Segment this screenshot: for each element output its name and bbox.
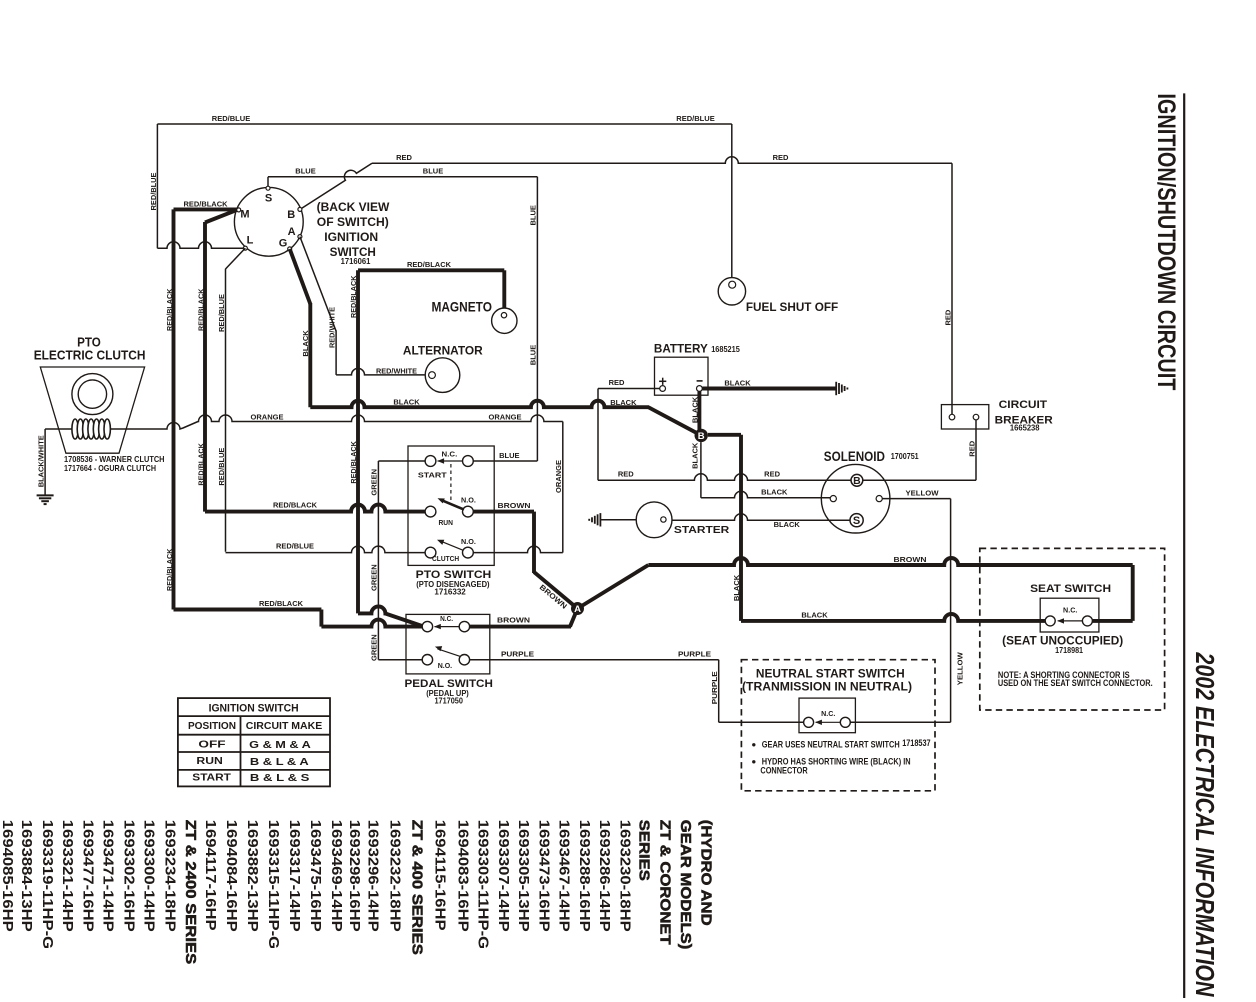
svg-text:RED/BLACK: RED/BLACK <box>349 275 358 318</box>
svg-text:BLUE: BLUE <box>423 167 443 176</box>
svg-text:1693232-18HP: 1693232-18HP <box>386 820 403 932</box>
svg-text:BLUE: BLUE <box>295 167 315 176</box>
svg-text:1693467-14HP: 1693467-14HP <box>556 820 573 932</box>
svg-text:1693884-13HP: 1693884-13HP <box>18 820 35 932</box>
svg-text:1693473-16HP: 1693473-16HP <box>535 820 552 932</box>
svg-text:1694083-16HP: 1694083-16HP <box>454 820 471 932</box>
svg-text:S: S <box>265 192 272 204</box>
svg-text:BATTERY: BATTERY <box>654 341 708 355</box>
svg-text:SOLENOID: SOLENOID <box>824 448 885 464</box>
svg-text:RED/BLACK: RED/BLACK <box>349 441 358 484</box>
svg-text:A: A <box>288 226 296 238</box>
svg-text:BLACK: BLACK <box>774 520 801 529</box>
svg-text:START: START <box>192 771 231 783</box>
svg-text:YELLOW: YELLOW <box>956 651 965 685</box>
svg-text:1693319-11HP-G: 1693319-11HP-G <box>39 820 56 949</box>
svg-text:BLUE: BLUE <box>529 205 538 225</box>
svg-text:BLACK: BLACK <box>301 330 310 357</box>
svg-text:CIRCUIT MAKE: CIRCUIT MAKE <box>246 720 323 732</box>
svg-text:RED/BLUE: RED/BLUE <box>217 294 226 332</box>
svg-text:CONNECTOR: CONNECTOR <box>760 766 808 776</box>
svg-text:IGNITION/SHUTDOWN CIRCUIT: IGNITION/SHUTDOWN CIRCUIT <box>1152 93 1180 390</box>
svg-text:BROWN: BROWN <box>498 501 531 510</box>
svg-text:BLUE: BLUE <box>529 345 538 365</box>
svg-text:OF SWITCH): OF SWITCH) <box>317 217 389 229</box>
svg-text:RED: RED <box>764 470 780 479</box>
svg-text:POSITION: POSITION <box>188 720 236 732</box>
svg-text:N.C.: N.C. <box>440 614 453 623</box>
svg-text:RED/BLACK: RED/BLACK <box>273 501 318 510</box>
svg-text:N.C.: N.C. <box>821 709 835 718</box>
svg-text:1693286-14HP: 1693286-14HP <box>596 820 613 932</box>
svg-text:PURPLE: PURPLE <box>501 649 534 658</box>
svg-text:GREEN: GREEN <box>370 469 379 496</box>
svg-text:G: G <box>279 238 288 250</box>
svg-text:1716332: 1716332 <box>434 586 466 596</box>
svg-text:(TRANMISSION IN NEUTRAL): (TRANMISSION IN NEUTRAL) <box>742 679 912 693</box>
svg-text:PURPLE: PURPLE <box>710 671 719 704</box>
svg-text:GREEN: GREEN <box>370 564 379 591</box>
svg-text:STARTER: STARTER <box>674 524 730 536</box>
svg-text:S: S <box>853 515 860 527</box>
svg-text:2002 ELECTRICAL INFORMATION: 2002 ELECTRICAL INFORMATION <box>1190 652 1220 998</box>
svg-text:B & L & S: B & L & S <box>250 772 310 784</box>
svg-text:BROWN: BROWN <box>497 616 530 625</box>
svg-text:START: START <box>418 470 447 479</box>
svg-text:PURPLE: PURPLE <box>678 649 711 658</box>
svg-text:1693317-14HP: 1693317-14HP <box>286 820 303 932</box>
svg-text:N.O.: N.O. <box>461 537 476 546</box>
svg-text:1694085-16HP: 1694085-16HP <box>0 820 16 932</box>
svg-text:M: M <box>240 209 249 221</box>
svg-text:1693288-16HP: 1693288-16HP <box>576 820 593 932</box>
svg-text:OFF: OFF <box>198 739 226 751</box>
svg-text:RED/WHITE: RED/WHITE <box>376 366 417 375</box>
svg-text:RED/WHITE: RED/WHITE <box>327 307 336 348</box>
svg-text:RED: RED <box>773 153 789 162</box>
svg-text:B & L & A: B & L & A <box>250 756 309 768</box>
svg-text:ALTERNATOR: ALTERNATOR <box>403 343 483 357</box>
svg-text:RED/BLUE: RED/BLUE <box>676 114 715 123</box>
svg-text:ELECTRIC CLUTCH: ELECTRIC CLUTCH <box>34 347 146 362</box>
svg-text:BLACK/WHITE: BLACK/WHITE <box>36 435 45 487</box>
svg-text:RED: RED <box>943 309 952 325</box>
svg-text:CLUTCH: CLUTCH <box>432 554 459 563</box>
svg-text:RED/BLUE: RED/BLUE <box>212 114 251 123</box>
svg-text:1693477-16HP: 1693477-16HP <box>79 820 96 932</box>
svg-text:1693303-11HP-G: 1693303-11HP-G <box>475 820 492 949</box>
svg-text:1700751: 1700751 <box>891 451 919 461</box>
svg-text:1716061: 1716061 <box>341 256 371 266</box>
svg-text:G & M & A: G & M & A <box>249 739 311 751</box>
svg-text:BLACK: BLACK <box>801 610 828 619</box>
svg-text:RED/BLACK: RED/BLACK <box>259 599 304 608</box>
svg-text:1665238: 1665238 <box>1010 422 1040 432</box>
svg-text:1693298-16HP: 1693298-16HP <box>346 820 363 932</box>
svg-text:BROWN: BROWN <box>894 555 927 564</box>
svg-text:BLACK: BLACK <box>724 378 751 387</box>
svg-text:BLACK: BLACK <box>691 396 700 423</box>
svg-text:FUEL SHUT OFF: FUEL SHUT OFF <box>746 302 838 314</box>
svg-text:N.C.: N.C. <box>1063 605 1077 614</box>
svg-text:IGNITION: IGNITION <box>324 232 378 244</box>
svg-text:1693230-18HP: 1693230-18HP <box>616 820 633 932</box>
svg-text:IGNITION SWITCH: IGNITION SWITCH <box>209 703 299 715</box>
svg-text:1717050: 1717050 <box>434 695 463 705</box>
svg-text:1693296-14HP: 1693296-14HP <box>364 820 381 932</box>
svg-text:1693307-14HP: 1693307-14HP <box>495 820 512 932</box>
svg-text:N.C.: N.C. <box>442 449 458 458</box>
svg-text:ZT & 400 SERIES: ZT & 400 SERIES <box>408 820 425 955</box>
svg-text:1685215: 1685215 <box>711 344 740 354</box>
svg-text:1693315-11HP-G: 1693315-11HP-G <box>265 820 282 949</box>
svg-text:RUN: RUN <box>438 518 453 527</box>
svg-text:1693305-13HP: 1693305-13HP <box>515 820 532 932</box>
svg-text:B: B <box>287 209 295 221</box>
svg-text:1717664 - OGURA CLUTCH: 1717664 - OGURA CLUTCH <box>64 463 156 473</box>
svg-text:RED/BLUE: RED/BLUE <box>276 542 314 551</box>
svg-text:BLUE: BLUE <box>499 451 519 460</box>
svg-text:BLACK: BLACK <box>761 488 788 497</box>
svg-text:ORANGE: ORANGE <box>489 412 522 421</box>
svg-text:B: B <box>853 475 861 487</box>
svg-text:1693321-14HP: 1693321-14HP <box>59 820 76 932</box>
svg-text:N.O.: N.O. <box>461 495 476 504</box>
svg-text:1693475-16HP: 1693475-16HP <box>307 820 324 932</box>
svg-text:RED: RED <box>967 440 976 456</box>
svg-text:BLACK: BLACK <box>393 397 420 406</box>
svg-text:1718981: 1718981 <box>1055 645 1083 655</box>
svg-text:GREEN: GREEN <box>370 634 379 661</box>
svg-text:RED/BLACK: RED/BLACK <box>196 288 205 331</box>
svg-text:SERIES: SERIES <box>636 820 653 881</box>
svg-text:L: L <box>247 234 254 246</box>
svg-text:1693300-14HP: 1693300-14HP <box>141 820 158 932</box>
svg-text:YELLOW: YELLOW <box>906 488 940 497</box>
svg-text:RED/BLACK: RED/BLACK <box>407 260 452 269</box>
svg-text:RED/BLACK: RED/BLACK <box>165 288 174 331</box>
svg-text:(HYDRO AND: (HYDRO AND <box>698 820 715 926</box>
svg-text:(BACK VIEW: (BACK VIEW <box>317 202 390 214</box>
svg-text:GEAR MODELS): GEAR MODELS) <box>677 820 694 950</box>
svg-text:1694117-16HP: 1694117-16HP <box>202 820 219 931</box>
svg-text:1694115-16HP: 1694115-16HP <box>431 820 448 931</box>
svg-text:BLACK: BLACK <box>691 442 700 469</box>
svg-text:1694084-16HP: 1694084-16HP <box>223 820 240 932</box>
svg-text:A: A <box>574 604 581 615</box>
svg-text:SEAT SWITCH: SEAT SWITCH <box>1030 583 1111 595</box>
svg-text:ZT & CORONET: ZT & CORONET <box>656 820 673 946</box>
svg-text:N.O.: N.O. <box>438 661 452 670</box>
svg-text:RED: RED <box>618 470 634 479</box>
svg-text:GEAR USES NEUTRAL START SWITCH: GEAR USES NEUTRAL START SWITCH <box>762 740 900 750</box>
svg-text:1693469-14HP: 1693469-14HP <box>328 820 345 932</box>
svg-text:RED: RED <box>609 378 625 387</box>
svg-text:RED/BLACK: RED/BLACK <box>165 548 174 591</box>
svg-text:RED/BLUE: RED/BLUE <box>217 448 226 486</box>
svg-text:ORANGE: ORANGE <box>251 412 284 421</box>
svg-text:RUN: RUN <box>196 755 222 767</box>
svg-text:1718537: 1718537 <box>902 738 930 748</box>
svg-text:USED ON THE SEAT SWITCH CONNEC: USED ON THE SEAT SWITCH CONNECTOR. <box>998 678 1153 688</box>
svg-text:CIRCUIT: CIRCUIT <box>999 399 1048 411</box>
svg-text:RED: RED <box>396 153 412 162</box>
svg-text:ORANGE: ORANGE <box>554 460 563 493</box>
svg-text:1693882-13HP: 1693882-13HP <box>244 820 261 932</box>
svg-text:RED/BLACK: RED/BLACK <box>196 443 205 486</box>
svg-text:B: B <box>698 431 705 442</box>
svg-text:1693471-14HP: 1693471-14HP <box>100 820 117 932</box>
svg-text:RED/BLUE: RED/BLUE <box>149 173 158 211</box>
svg-text:RED/BLACK: RED/BLACK <box>184 199 229 208</box>
svg-text:ZT & 2400 SERIES: ZT & 2400 SERIES <box>182 820 199 964</box>
svg-text:BLACK: BLACK <box>610 398 637 407</box>
svg-text:1693302-16HP: 1693302-16HP <box>121 820 138 932</box>
svg-text:1693234-18HP: 1693234-18HP <box>161 820 178 932</box>
svg-text:MAGNETO: MAGNETO <box>431 300 492 315</box>
